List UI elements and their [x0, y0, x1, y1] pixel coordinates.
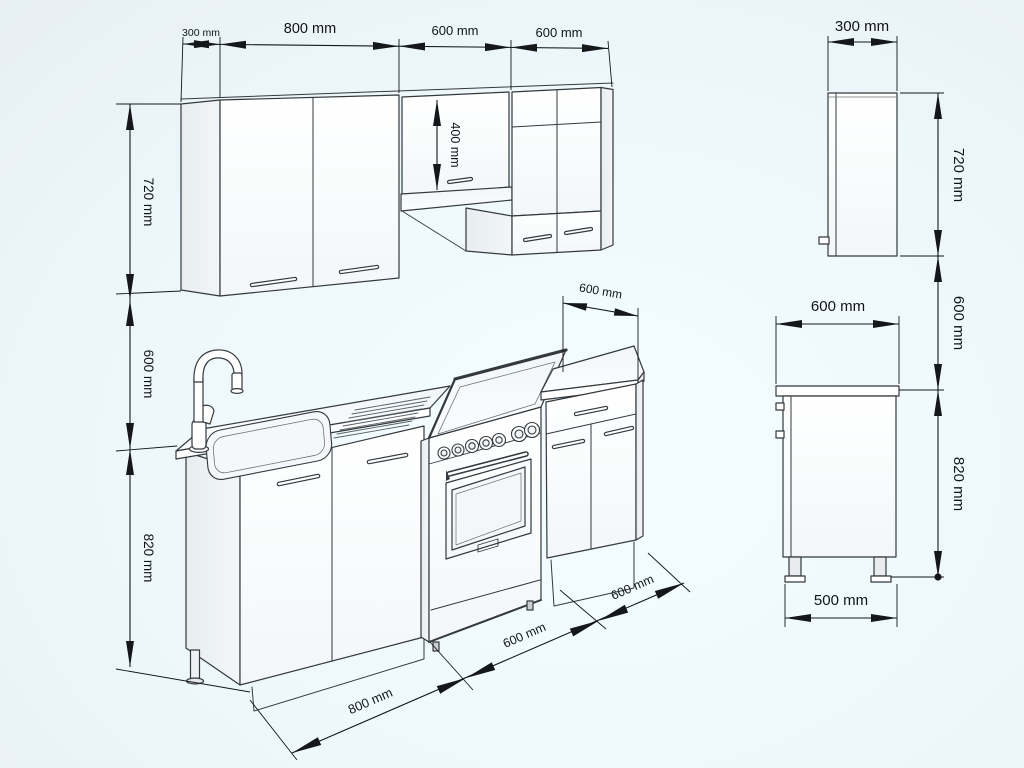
dim-label-top-600a: 600 mm: [432, 23, 479, 38]
side-view-drawer-handle: [776, 403, 784, 410]
dim-label-top-600b: 600 mm: [536, 25, 583, 40]
dim-label-left-820: 820 mm: [141, 534, 156, 583]
wall-cabinet-left-side: [181, 100, 220, 296]
wall-cabinet-right-side: [601, 88, 613, 251]
side-view-leg: [874, 557, 886, 576]
dim-label-sv-720: 720 mm: [950, 148, 967, 202]
dim-label-mid-400: 400 mm: [448, 122, 462, 167]
dim-label-sv-gap-600: 600 mm: [950, 296, 967, 350]
dim-label-floor-800: 800 mm: [346, 685, 395, 717]
technical-drawing-canvas: 300 mm 800 mm 600 mm 600 mm 720 mm 600 m…: [0, 0, 1024, 768]
wall-cabinets: [181, 83, 613, 296]
side-view-leg: [789, 557, 801, 576]
kitchen-dimension-diagram: 300 mm 800 mm 600 mm 600 mm 720 mm 600 m…: [0, 0, 1024, 768]
dim-label-sv-500: 500 mm: [814, 592, 868, 609]
side-view-handle: [819, 237, 829, 244]
dim-label-counter-600: 600 mm: [578, 280, 623, 301]
dim-label-sv-600: 600 mm: [811, 298, 865, 315]
wall-cabinet-right-lower-side: [466, 208, 512, 255]
cabinet-leg: [191, 650, 200, 679]
dim-label-top-300: 300 mm: [182, 27, 220, 39]
dimension-end-dot: [934, 573, 941, 580]
dim-label-sv-820: 820 mm: [950, 457, 967, 511]
dim-label-floor-600a: 600 mm: [501, 620, 548, 651]
dim-label-sv-300: 300 mm: [835, 18, 889, 35]
side-view-countertop: [776, 386, 899, 396]
side-view-foot: [785, 576, 805, 582]
right-base-cabinet: [541, 346, 644, 606]
dim-label-left-600: 600 mm: [141, 350, 156, 399]
dim-label-top-800: 800 mm: [284, 21, 336, 37]
side-view-door-handle: [776, 431, 784, 438]
base-cabinet-side-view: [776, 386, 899, 582]
dim-label-left-720: 720 mm: [141, 178, 156, 227]
side-view-foot: [871, 576, 891, 582]
wall-cabinet-side-view: [819, 93, 897, 256]
cabinet-foot: [187, 678, 204, 684]
base-cabinets: [176, 346, 644, 711]
